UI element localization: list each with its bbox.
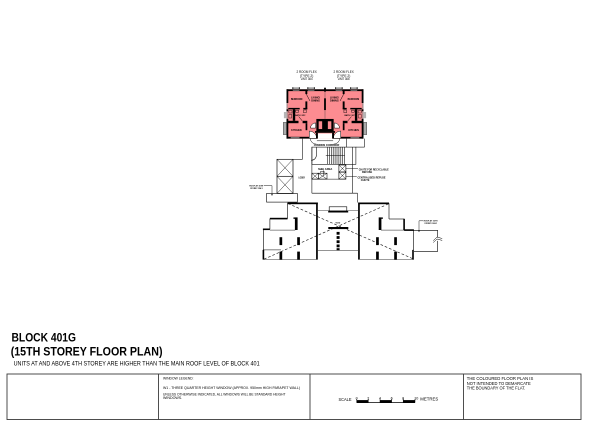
svg-text:WINDOWS.: WINDOWS. <box>163 396 182 400</box>
svg-text:10: 10 <box>414 396 418 400</box>
svg-text:SCALE: SCALE <box>339 397 352 402</box>
svg-text:W1 - THREE QUARTER HEIGHT WIN: W1 - THREE QUARTER HEIGHT WINDOW (APPROX… <box>163 386 300 390</box>
svg-text:DINING: DINING <box>311 99 320 102</box>
svg-text:LOBBY: LOBBY <box>299 176 306 179</box>
svg-text:STOREY ONLY: STOREY ONLY <box>250 188 263 190</box>
svg-text:(15TH STOREY FLOOR PLAN): (15TH STOREY FLOOR PLAN) <box>11 345 163 359</box>
svg-text:KITCHEN: KITCHEN <box>348 129 359 132</box>
svg-text:ROOF AT 16TH: ROOF AT 16TH <box>249 185 263 188</box>
svg-text:BEDROOM: BEDROOM <box>291 98 303 101</box>
svg-text:UNIT 366: UNIT 366 <box>338 77 350 81</box>
svg-text:BATH / WC: BATH / WC <box>295 114 306 117</box>
svg-text:COMMON CORRIDOR: COMMON CORRIDOR <box>314 143 340 147</box>
svg-text:0: 0 <box>356 396 358 400</box>
svg-text:REFUSE: REFUSE <box>362 171 372 174</box>
svg-text:BEDROOM: BEDROOM <box>348 98 360 101</box>
svg-text:8: 8 <box>402 396 404 400</box>
svg-text:THE BOUNDARY OF THE FLAT.: THE BOUNDARY OF THE FLAT. <box>467 386 526 391</box>
svg-text:4: 4 <box>379 396 381 400</box>
svg-text:2: 2 <box>367 396 369 400</box>
svg-text:STOREY ONLY: STOREY ONLY <box>424 223 437 225</box>
svg-text:BLOCK 401G: BLOCK 401G <box>12 331 77 345</box>
svg-text:WINDOW LEGEND:: WINDOW LEGEND: <box>163 377 194 381</box>
svg-text:VOID: VOID <box>335 223 340 225</box>
svg-text:UNIT 364: UNIT 364 <box>301 77 313 81</box>
svg-text:BATH / WC: BATH / WC <box>344 114 355 117</box>
svg-text:ROOF AT 16TH: ROOF AT 16TH <box>424 220 438 223</box>
svg-text:DINING: DINING <box>330 99 339 102</box>
svg-text:KITCHEN: KITCHEN <box>291 129 302 132</box>
svg-text:METRES: METRES <box>420 397 438 402</box>
svg-text:M&E AREA: M&E AREA <box>318 168 332 171</box>
svg-text:UNITS AT AND ABOVE 4TH STOREY: UNITS AT AND ABOVE 4TH STOREY ARE HIGHER… <box>14 360 260 367</box>
svg-text:6: 6 <box>391 396 393 400</box>
svg-text:CHUTE: CHUTE <box>361 179 370 182</box>
